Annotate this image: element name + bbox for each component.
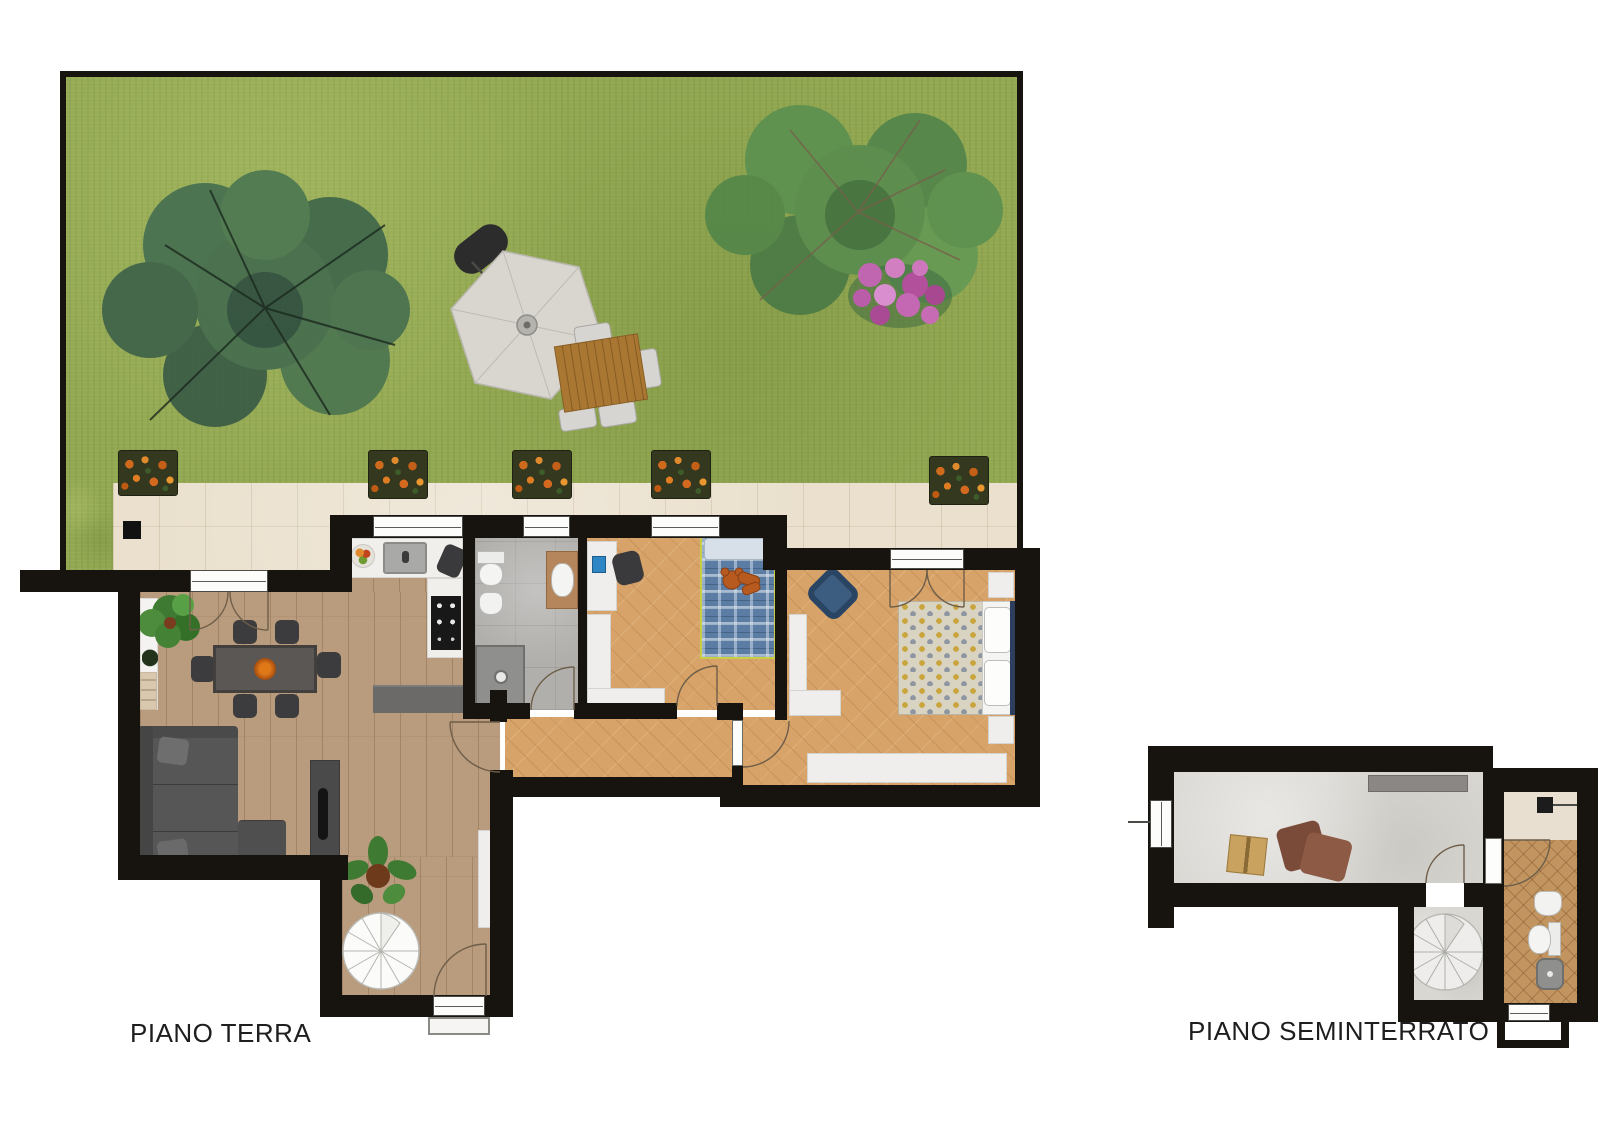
basement-floor-label: PIANO SEMINTERRATO [1188,1016,1489,1047]
door-swing-overlay [0,0,1600,1132]
floor-plan-page: PIANO TERRA PIANO SEMINTERRATO [0,0,1600,1132]
ground-floor-label: PIANO TERRA [130,1018,311,1049]
